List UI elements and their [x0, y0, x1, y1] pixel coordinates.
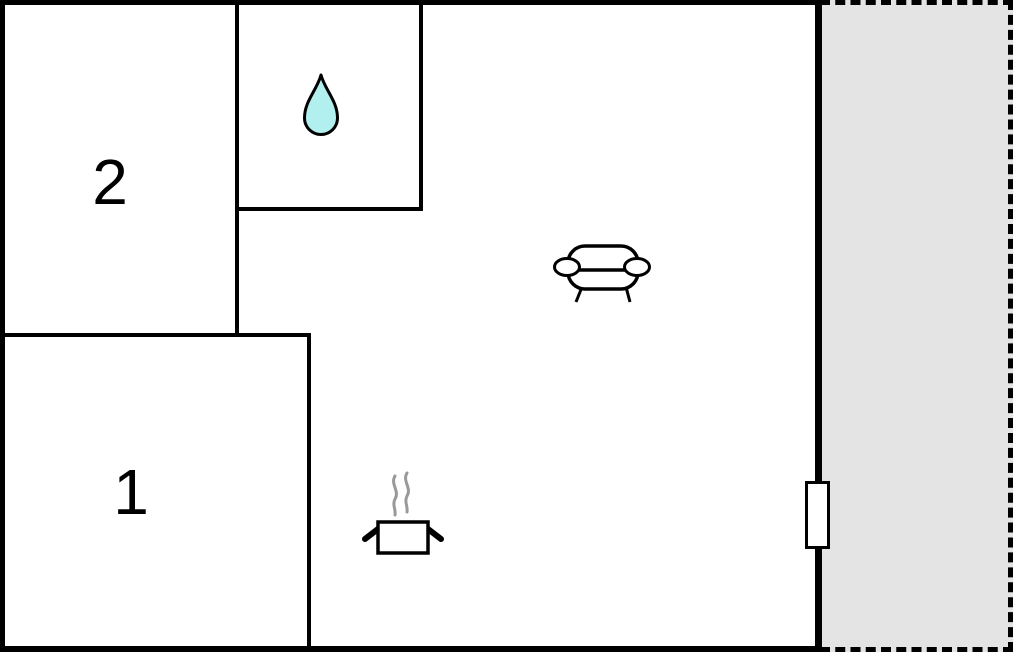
- wall-bathroom-bottom: [235, 207, 423, 211]
- door-right-wall: [805, 481, 830, 549]
- sofa-icon: [551, 241, 651, 307]
- floor-plan-canvas: 2 1: [0, 0, 1015, 652]
- cooking-pot-icon: [361, 466, 445, 558]
- wall-room1-right: [307, 333, 311, 652]
- room-2-label: 2: [70, 146, 150, 218]
- water-drop-shape: [305, 75, 338, 135]
- terrace-area: [820, 0, 1013, 652]
- wall-bathroom-right: [419, 0, 423, 211]
- sofa-shape: [555, 246, 650, 302]
- wall-bathroom-left: [235, 0, 239, 337]
- room-1-label: 1: [91, 456, 171, 528]
- steam-lines: [394, 473, 409, 515]
- pot-shape: [365, 522, 441, 553]
- wall-room1-top: [0, 333, 311, 337]
- water-drop-icon: [301, 72, 341, 138]
